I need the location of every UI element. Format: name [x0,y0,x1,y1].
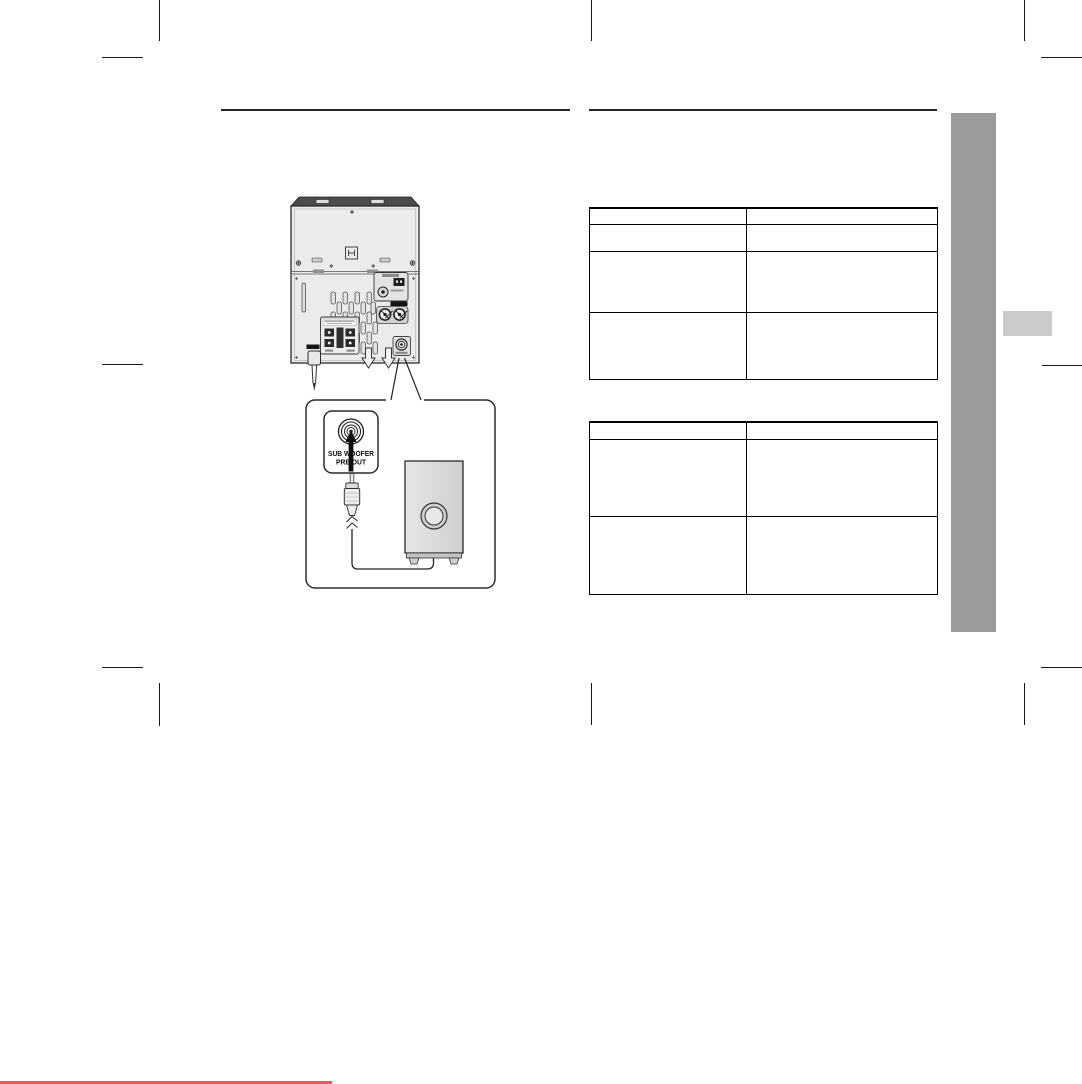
table-cell [590,517,746,595]
crop-mark [1042,365,1082,366]
crop-mark [1024,683,1025,725]
table-cell [590,252,746,312]
subwoofer-connection-illustration: SUB WOOFER PRE OUT [283,192,513,592]
crop-mark [591,0,592,41]
table-header-cell [590,209,746,224]
table-cell [746,252,937,312]
subwoofer-preout-jack [393,337,411,356]
am-loop-terminal [394,278,405,286]
table-cell [746,440,937,516]
table-cell [590,313,746,379]
crop-mark [159,683,160,726]
stereo-back-panel [291,197,419,391]
table-header-cell [590,423,746,439]
manual-page: SUB WOOFER PRE OUT [0,0,1082,1084]
table-cell [746,225,937,251]
table-top [589,207,938,380]
crop-mark [102,667,143,668]
subwoofer-speaker [405,461,463,564]
ac-power-cord [307,345,321,392]
crop-mark [102,57,143,58]
table-row [590,423,937,439]
table-row [590,251,937,312]
crop-mark [102,364,143,365]
header-rule-left-page [221,109,570,111]
speaker-terminal-block [321,317,360,354]
table-cell [590,225,746,251]
header-rule-right-page [589,109,937,111]
top-handle-slot [371,200,384,204]
table-bottom [589,421,938,595]
jack-plate: SUB WOOFER PRE OUT [324,411,378,473]
antenna-terminal-panel [374,273,408,302]
chapter-section-tab [1003,311,1052,336]
table-row [590,224,937,251]
table-header-cell [746,209,937,224]
table-cell [746,313,937,379]
callout-leader-lines [391,358,421,400]
top-handle-slot [316,200,329,204]
crop-mark [159,0,160,41]
crop-mark [1041,57,1082,58]
table-cell [746,517,937,595]
table-cell [590,440,746,516]
crop-mark [1024,0,1025,41]
table-row [590,439,937,516]
table-row [590,209,937,224]
table-row [590,312,937,379]
chapter-sidebar-bar [951,113,996,632]
table-row [590,516,937,595]
crop-mark [1041,667,1082,668]
table-header-cell [746,423,937,439]
crop-mark [591,683,592,725]
